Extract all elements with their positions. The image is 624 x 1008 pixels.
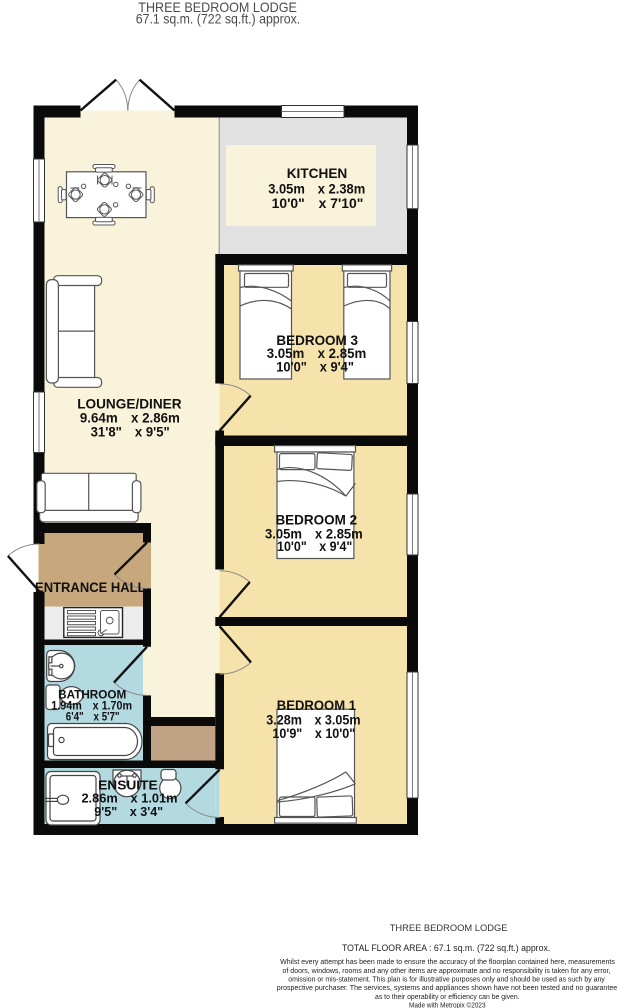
svg-text:BEDROOM 1: BEDROOM 1 bbox=[277, 698, 357, 713]
svg-text:of doors, windows, rooms and a: of doors, windows, rooms and any other i… bbox=[283, 968, 611, 975]
svg-text:Made with Metropix ©2023: Made with Metropix ©2023 bbox=[409, 1001, 486, 1008]
svg-text:TOTAL FLOOR AREA : 67.1 sq.m.: TOTAL FLOOR AREA : 67.1 sq.m. (722 sq.ft… bbox=[342, 943, 550, 954]
svg-text:LOUNGE/DINER: LOUNGE/DINER bbox=[77, 397, 181, 412]
svg-text:3.05m x 2.38m: 3.05m x 2.38m bbox=[268, 182, 365, 197]
svg-text:9'5" x 3'4": 9'5" x 3'4" bbox=[94, 804, 163, 819]
svg-text:prospective purchaser. The ser: prospective purchaser. The services, sys… bbox=[277, 985, 618, 992]
svg-text:omission or mis-statement. Thi: omission or mis-statement. This plan is … bbox=[288, 977, 605, 984]
svg-text:9.64m x 2.86m: 9.64m x 2.86m bbox=[80, 411, 180, 426]
svg-text:THREE BEDROOM LODGE: THREE BEDROOM LODGE bbox=[390, 923, 508, 934]
svg-text:BEDROOM 2: BEDROOM 2 bbox=[275, 513, 357, 528]
svg-text:Whilst every attempt has been: Whilst every attempt has been made to en… bbox=[280, 959, 615, 966]
svg-text:BATHROOM: BATHROOM bbox=[58, 689, 126, 701]
svg-text:6'4" x 5'7": 6'4" x 5'7" bbox=[66, 711, 120, 723]
svg-text:10'9" x 10'0": 10'9" x 10'0" bbox=[272, 726, 355, 741]
svg-text:67.1 sq.m. (722 sq.ft.) approx: 67.1 sq.m. (722 sq.ft.) approx. bbox=[136, 12, 300, 27]
svg-text:10'0" x 9'4": 10'0" x 9'4" bbox=[277, 539, 352, 554]
svg-text:10'0" x 7'10": 10'0" x 7'10" bbox=[272, 196, 364, 211]
svg-text:31'8" x 9'5": 31'8" x 9'5" bbox=[91, 424, 170, 439]
svg-text:KITCHEN: KITCHEN bbox=[287, 166, 348, 181]
svg-text:as to their operability or eff: as to their operability or efficiency ca… bbox=[375, 994, 520, 1001]
svg-text:ENTRANCE HALL: ENTRANCE HALL bbox=[35, 580, 146, 595]
svg-text:10'0" x 9'4": 10'0" x 9'4" bbox=[276, 359, 354, 374]
